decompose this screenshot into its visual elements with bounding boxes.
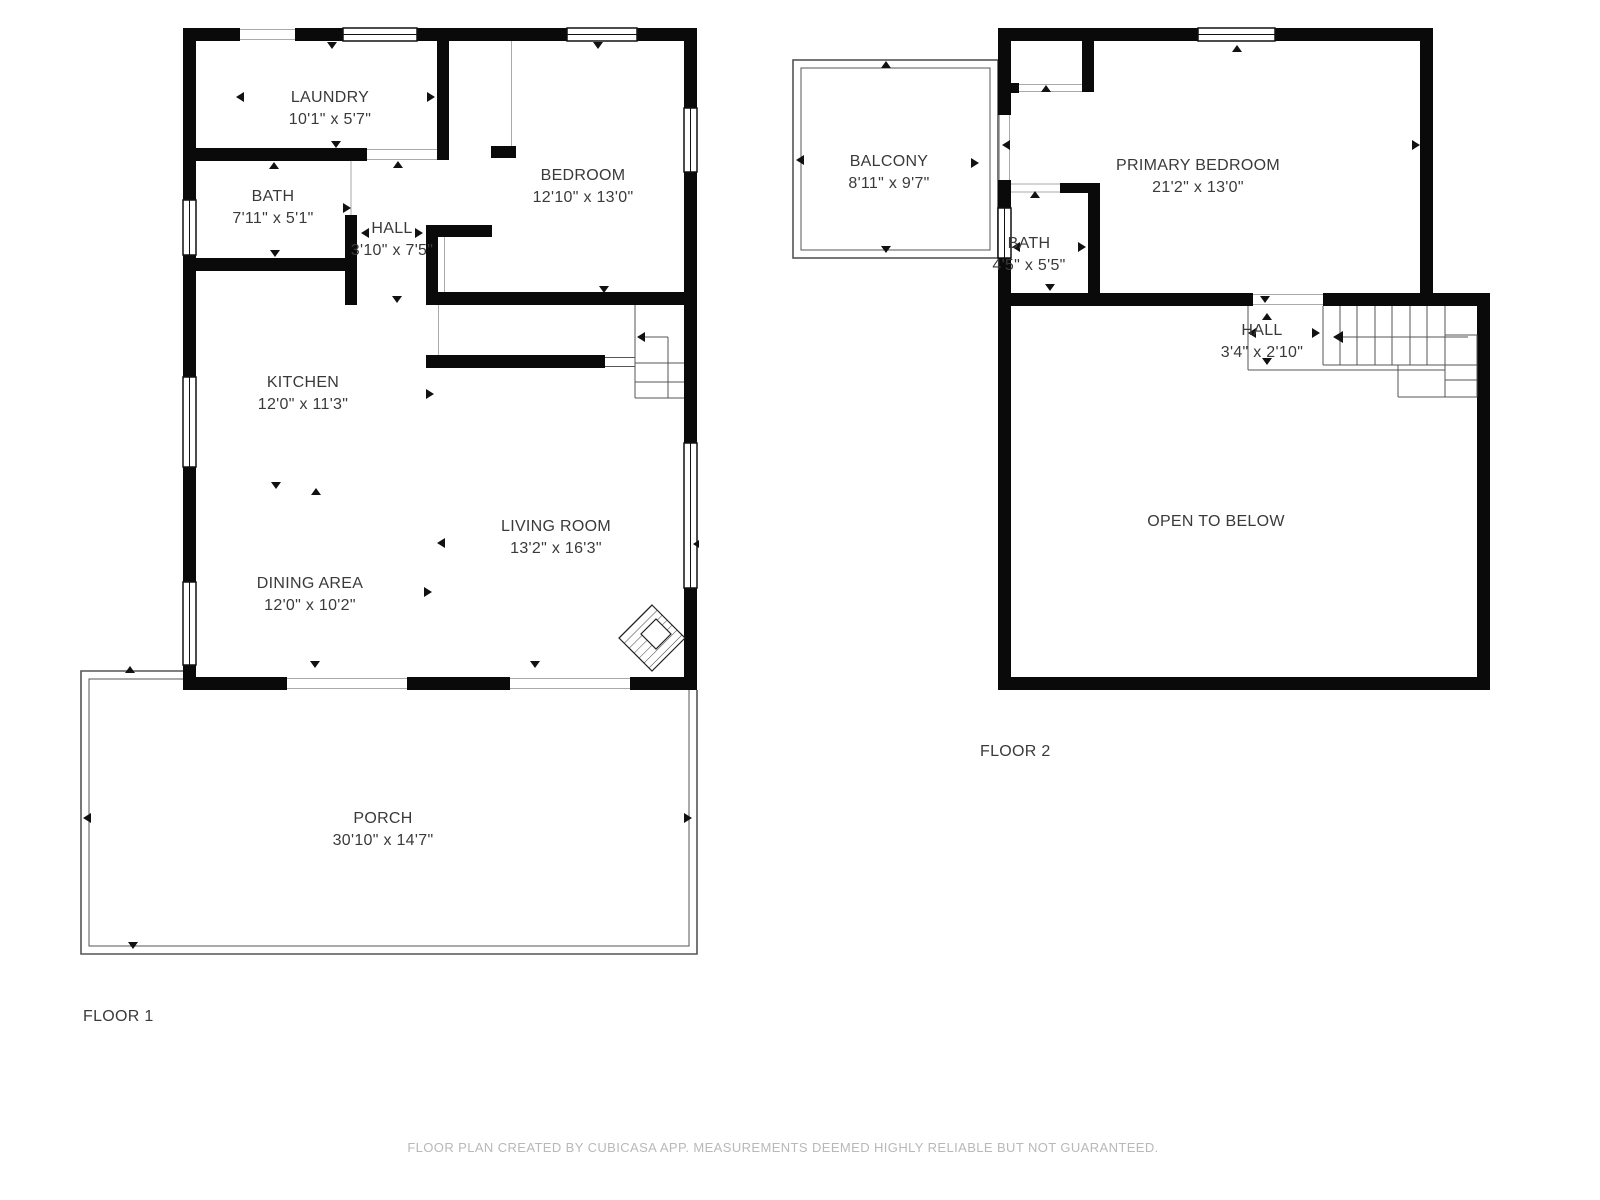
room-dims: 13'2" x 16'3": [501, 538, 611, 560]
disclaimer-text: FLOOR PLAN CREATED BY CUBICASA APP. MEAS…: [407, 1140, 1158, 1155]
floor2-direction-markers: [796, 45, 1420, 365]
room-label-balcony: BALCONY 8'11" x 9'7": [848, 151, 929, 195]
room-dims: 3'4" x 2'10": [1221, 342, 1303, 364]
room-name: HALL: [351, 218, 433, 240]
room-dims: 12'10" x 13'0": [533, 187, 634, 209]
room-dims: 8'11" x 9'7": [848, 173, 929, 195]
room-dims: 12'0" x 10'2": [257, 595, 363, 617]
room-label-bath-f1: BATH 7'11" x 5'1": [232, 186, 313, 230]
room-name: BATH: [992, 233, 1065, 255]
room-name: BEDROOM: [533, 165, 634, 187]
floor2-windows: [998, 28, 1275, 258]
stairs-direction-arrow-icon: [1333, 331, 1343, 343]
room-label-bath-f2: BATH 4'5" x 5'5": [992, 233, 1065, 277]
room-label-living-room: LIVING ROOM 13'2" x 16'3": [501, 516, 611, 560]
floorplan-page: LAUNDRY 10'1" x 5'7" BATH 7'11" x 5'1" H…: [0, 0, 1600, 1200]
room-name: HALL: [1221, 320, 1303, 342]
room-name: BATH: [232, 186, 313, 208]
room-label-hall-f2: HALL 3'4" x 2'10": [1221, 320, 1303, 364]
room-dims: 7'11" x 5'1": [232, 208, 313, 230]
floor2-plan: [793, 28, 1490, 690]
room-name: OPEN TO BELOW: [1147, 511, 1285, 533]
floor2-label: FLOOR 2: [980, 743, 1051, 761]
room-label-open-to-below: OPEN TO BELOW: [1147, 511, 1285, 533]
room-label-laundry: LAUNDRY 10'1" x 5'7": [289, 87, 371, 131]
room-label-porch: PORCH 30'10" x 14'7": [333, 808, 434, 852]
room-dims: 21'2" x 13'0": [1116, 177, 1280, 199]
room-name: BALCONY: [848, 151, 929, 173]
room-label-kitchen: KITCHEN 12'0" x 11'3": [258, 372, 348, 416]
room-dims: 3'10" x 7'5": [351, 240, 433, 262]
room-dims: 12'0" x 11'3": [258, 394, 348, 416]
room-name: KITCHEN: [258, 372, 348, 394]
floor1-stairs: [605, 305, 684, 398]
stairs-down-arrow-icon: [637, 332, 645, 342]
room-name: PORCH: [333, 808, 434, 830]
room-dims: 4'5" x 5'5": [992, 255, 1065, 277]
floorplan-graphics: [0, 0, 1600, 1200]
room-name: PRIMARY BEDROOM: [1116, 155, 1280, 177]
room-name: LAUNDRY: [289, 87, 371, 109]
room-name: DINING AREA: [257, 573, 363, 595]
floor1-label: FLOOR 1: [83, 1008, 154, 1026]
room-dims: 10'1" x 5'7": [289, 109, 371, 131]
room-label-primary-bedroom: PRIMARY BEDROOM 21'2" x 13'0": [1116, 155, 1280, 199]
room-label-hall-f1: HALL 3'10" x 7'5": [351, 218, 433, 262]
room-dims: 30'10" x 14'7": [333, 830, 434, 852]
room-label-dining-area: DINING AREA 12'0" x 10'2": [257, 573, 363, 617]
north-arrow-icon: [619, 605, 685, 671]
room-name: LIVING ROOM: [501, 516, 611, 538]
room-label-bedroom: BEDROOM 12'10" x 13'0": [533, 165, 634, 209]
